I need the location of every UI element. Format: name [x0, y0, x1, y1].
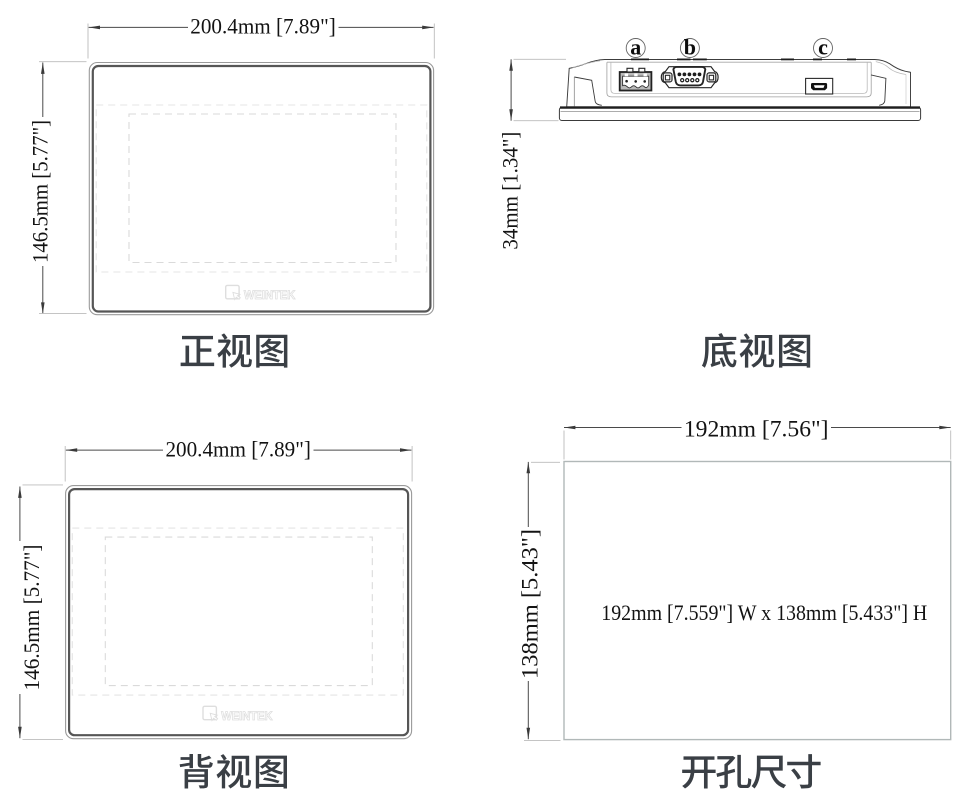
svg-text:34mm [1.34"]: 34mm [1.34"] — [498, 132, 523, 250]
svg-text:WEINTEK: WEINTEK — [244, 288, 296, 302]
svg-text:c: c — [818, 34, 828, 59]
svg-text:200.4mm [7.89"]: 200.4mm [7.89"] — [165, 436, 311, 461]
svg-text:146.5mm [5.77"]: 146.5mm [5.77"] — [19, 545, 44, 691]
svg-text:200.4mm [7.89"]: 200.4mm [7.89"] — [190, 14, 336, 39]
svg-text:146.5mm [5.77"]: 146.5mm [5.77"] — [27, 120, 52, 263]
svg-text:138mm [5.43"]: 138mm [5.43"] — [517, 529, 543, 679]
svg-text:WEINTEK: WEINTEK — [221, 709, 273, 723]
svg-text:b: b — [684, 34, 696, 59]
svg-text:192mm [7.56"]: 192mm [7.56"] — [684, 416, 829, 442]
svg-text:192mm [7.559"] W x 138mm [5.43: 192mm [7.559"] W x 138mm [5.433"] H — [601, 600, 927, 625]
svg-text:a: a — [630, 34, 641, 59]
